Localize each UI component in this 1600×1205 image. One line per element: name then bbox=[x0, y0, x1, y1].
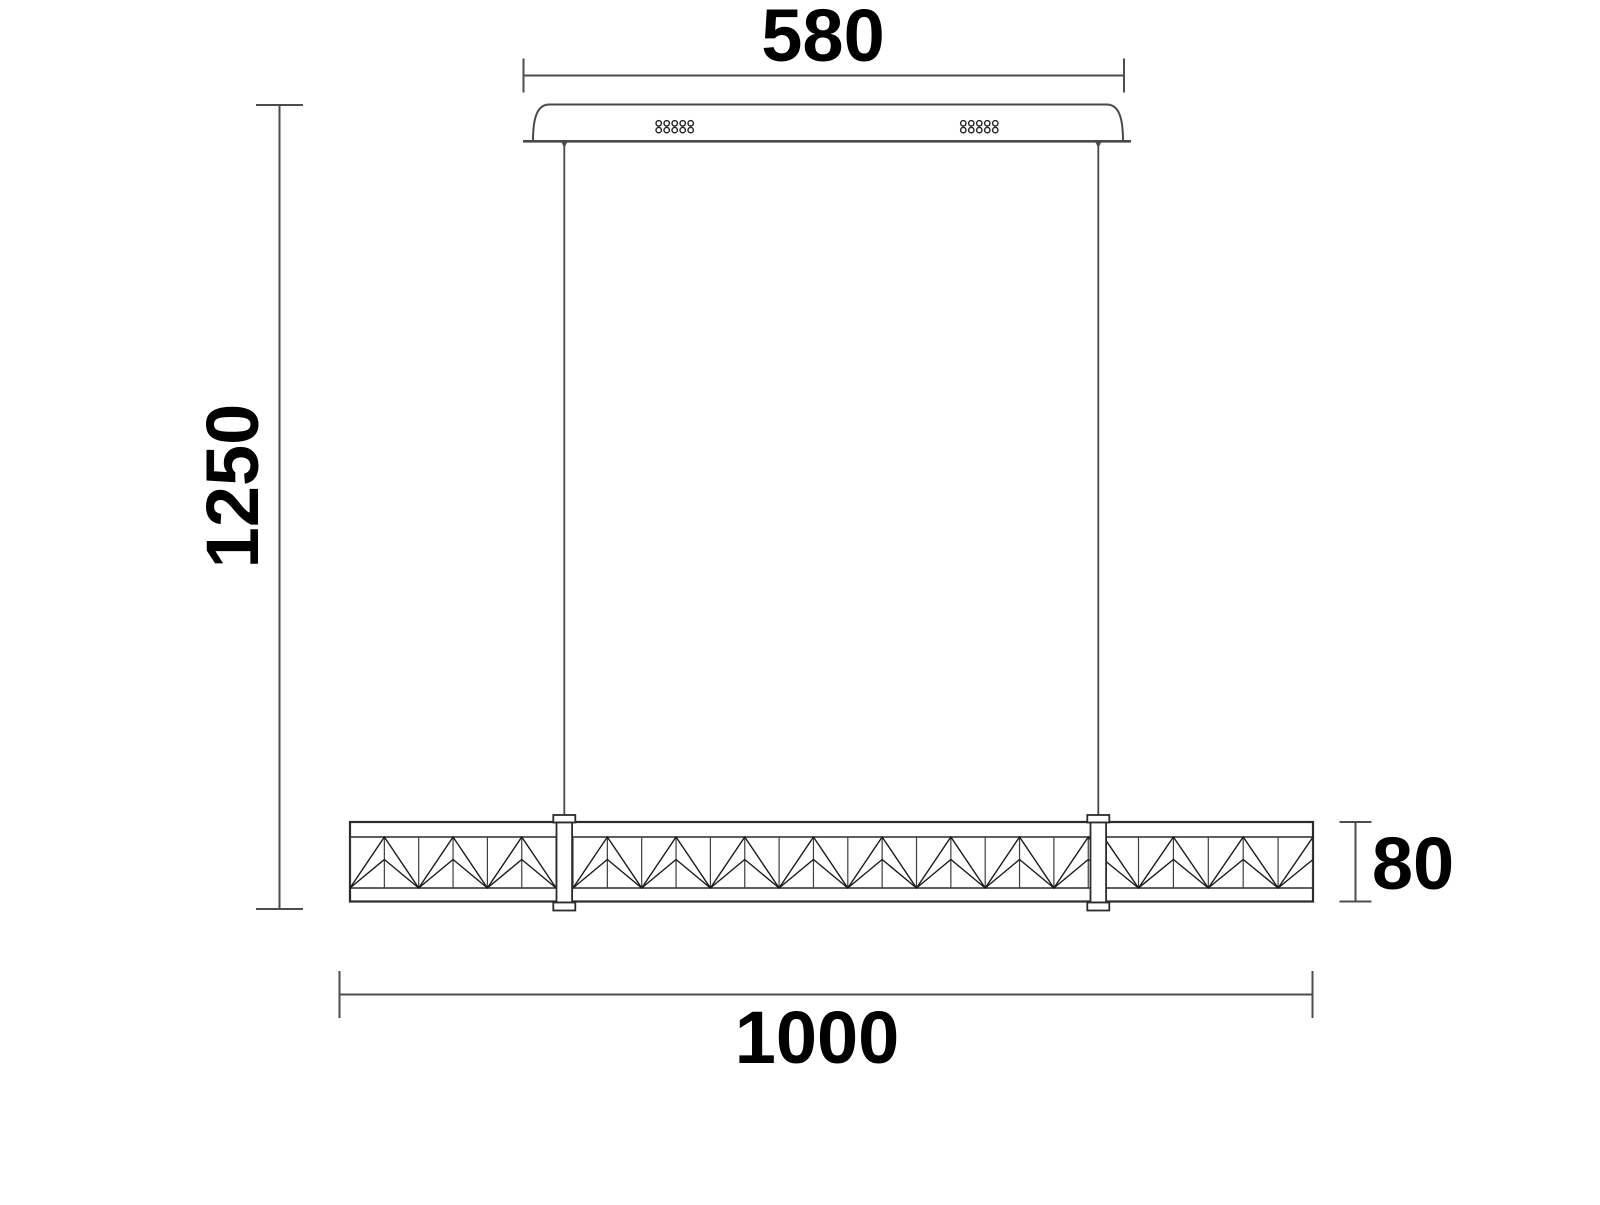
screw-hole bbox=[993, 127, 998, 132]
screw-hole bbox=[985, 121, 990, 126]
ceiling-canopy bbox=[523, 105, 1131, 142]
sleeve-top-cap bbox=[553, 815, 575, 823]
sleeve-bottom-cap bbox=[553, 903, 575, 911]
suspension-cables bbox=[561, 142, 1101, 816]
screw-hole bbox=[664, 121, 669, 126]
dimension-label-canopy-width: 580 bbox=[761, 0, 884, 77]
dimension-overall-drop: 1250 bbox=[191, 105, 303, 909]
cable-anchor-nub bbox=[561, 142, 567, 148]
screw-hole bbox=[664, 127, 669, 132]
sleeve-body bbox=[1091, 823, 1107, 903]
screw-hole bbox=[688, 127, 693, 132]
screw-hole bbox=[977, 121, 982, 126]
sleeve-top-cap bbox=[1087, 815, 1109, 823]
sleeve-bottom-cap bbox=[1087, 903, 1109, 911]
dimension-label-overall-drop: 1250 bbox=[191, 404, 274, 569]
screw-hole bbox=[688, 121, 693, 126]
screw-hole bbox=[985, 127, 990, 132]
canopy-body bbox=[533, 105, 1123, 142]
cable-sleeve-left bbox=[553, 815, 575, 911]
drawing-page: 5801250100080 bbox=[0, 0, 1600, 1200]
screw-hole bbox=[680, 121, 685, 126]
screw-hole bbox=[656, 127, 661, 132]
sleeve-body bbox=[557, 823, 573, 903]
screw-hole bbox=[961, 121, 966, 126]
screw-hole bbox=[961, 127, 966, 132]
screw-hole bbox=[969, 127, 974, 132]
bar-outline bbox=[350, 822, 1313, 902]
dimension-label-fixture-length: 1000 bbox=[735, 996, 900, 1079]
screw-hole bbox=[656, 121, 661, 126]
screw-hole bbox=[977, 127, 982, 132]
cable-sleeve-right bbox=[1087, 815, 1109, 911]
screw-hole bbox=[993, 121, 998, 126]
dimension-label-fixture-height: 80 bbox=[1372, 822, 1454, 905]
cable-anchor-nub bbox=[1095, 142, 1101, 148]
screw-hole bbox=[672, 121, 677, 126]
dimension-fixture-height: 80 bbox=[1340, 822, 1455, 905]
dimension-fixture-length: 1000 bbox=[340, 971, 1313, 1079]
light-bar bbox=[144, 815, 1383, 911]
screw-hole bbox=[680, 127, 685, 132]
screw-hole bbox=[672, 127, 677, 132]
dimension-canopy-width: 580 bbox=[524, 0, 1125, 93]
screw-hole bbox=[969, 121, 974, 126]
pendant-light-dimension-drawing: 5801250100080 bbox=[0, 0, 1600, 1200]
